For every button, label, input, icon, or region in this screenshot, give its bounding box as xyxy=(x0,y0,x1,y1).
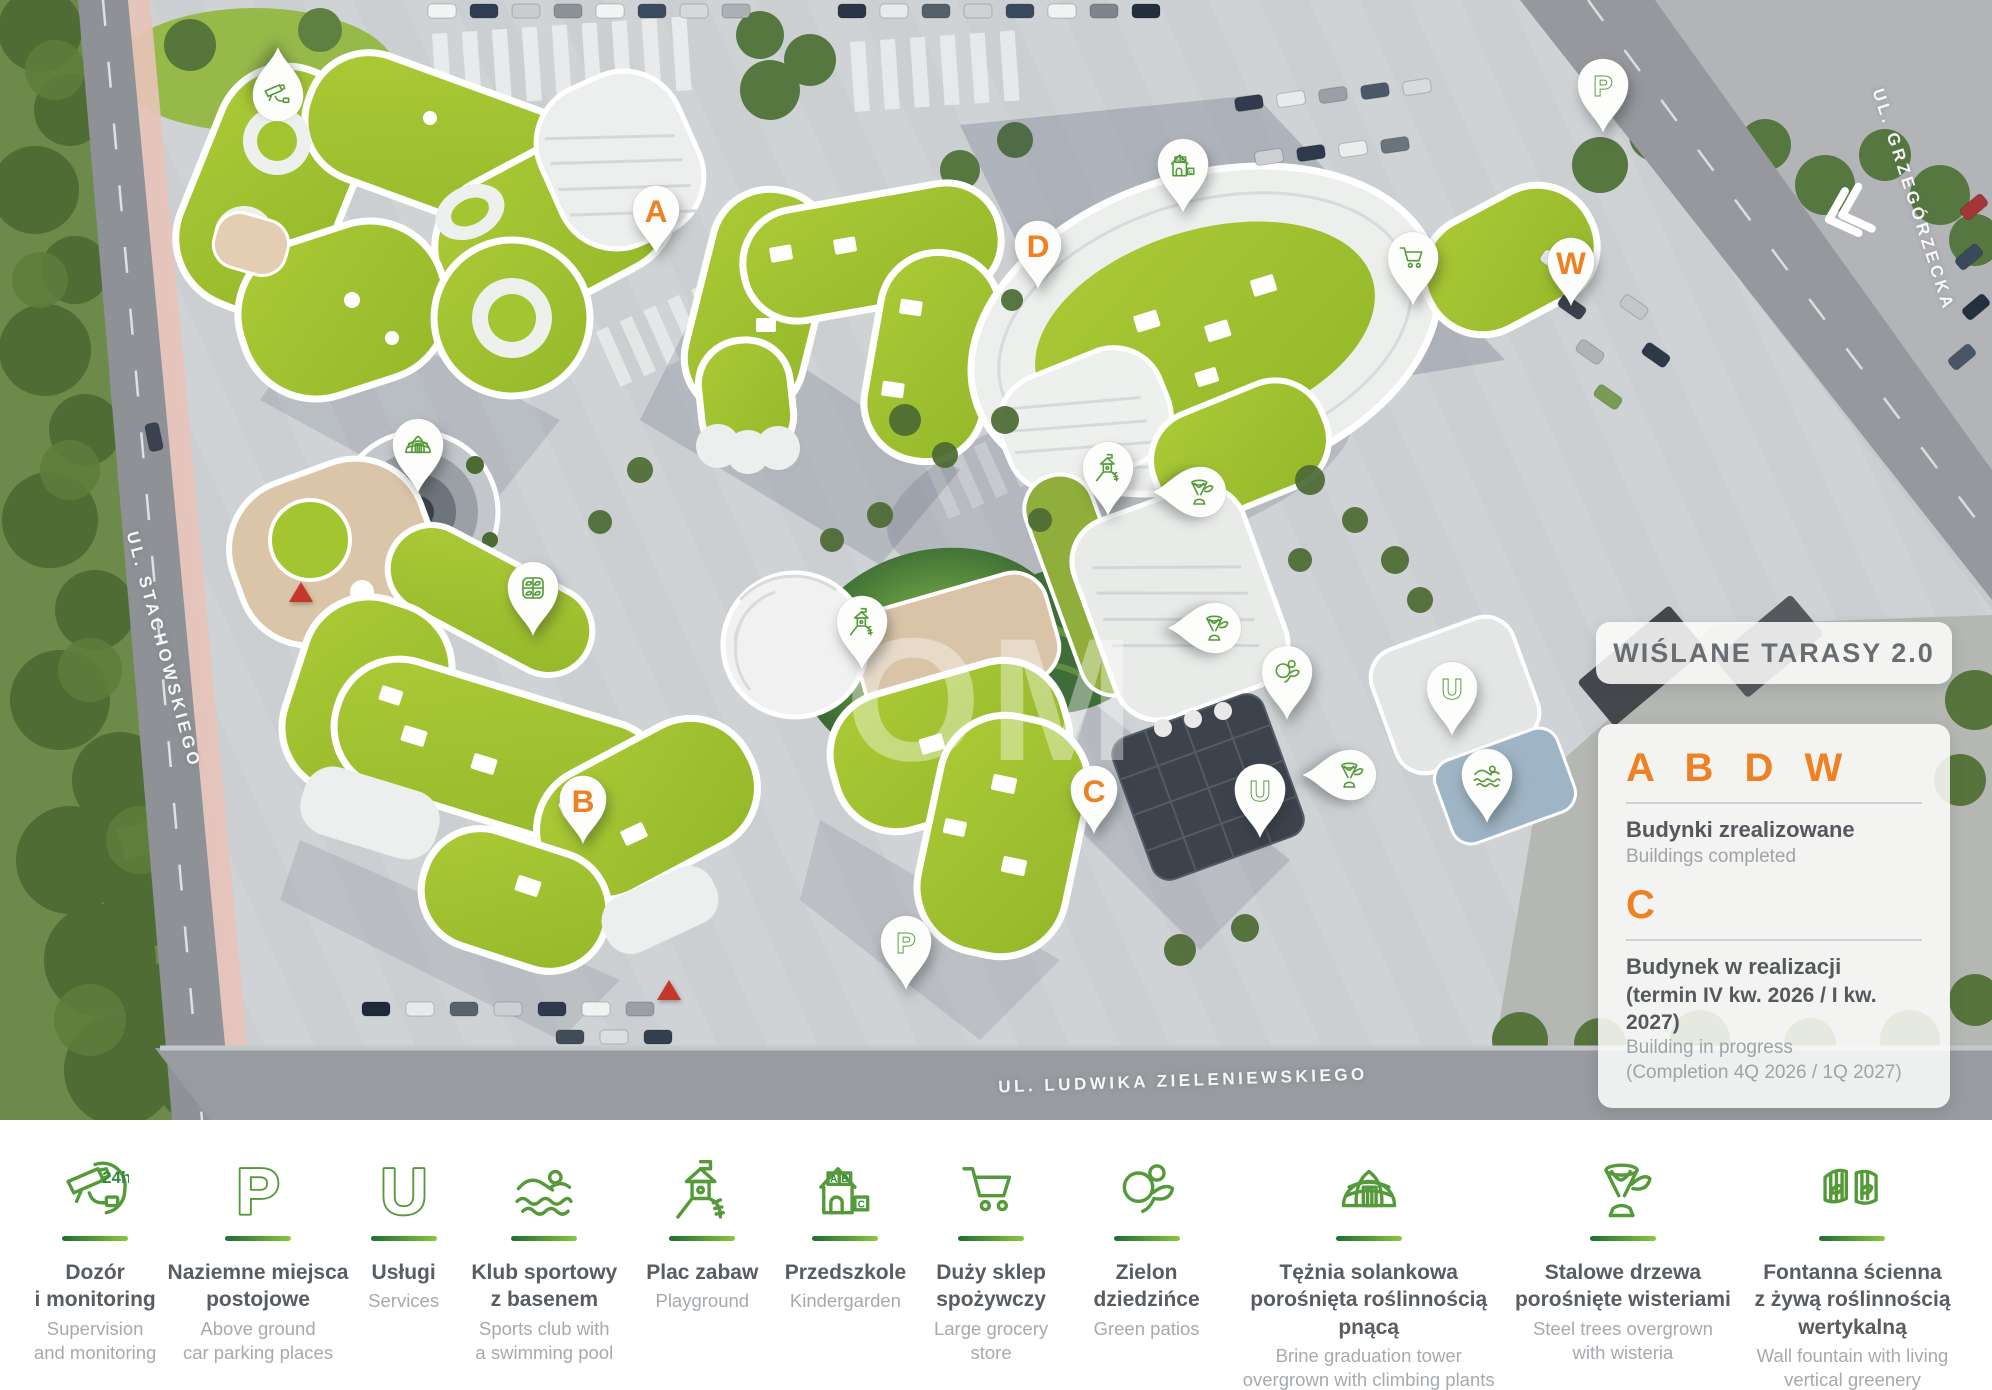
amenity-pin-brine-tower xyxy=(390,417,446,473)
legend-underline xyxy=(669,1236,735,1241)
brine-tower-icon xyxy=(402,429,434,461)
legend-label-pl: Dozór i monitoring xyxy=(34,1259,155,1314)
amenity-pin-swimming xyxy=(1459,747,1515,803)
amenities-legend-bar: 24hDozór i monitoringSupervision and mon… xyxy=(0,1120,1992,1390)
legend-underline xyxy=(1336,1236,1402,1241)
completed-label-pl: Budynki zrealizowane xyxy=(1626,816,1922,845)
amenity-pin-steel-tree xyxy=(1187,600,1243,656)
legend-label-en: Wall fountain with living vertical green… xyxy=(1757,1344,1949,1390)
building-letter: B xyxy=(564,781,602,819)
swimming-icon xyxy=(510,1138,578,1224)
parking-letter-icon: P xyxy=(1585,67,1621,103)
legend-item-steel-tree: Stalowe drzewa porośnięte wisteriamiStee… xyxy=(1507,1138,1739,1365)
playground-icon xyxy=(668,1138,736,1224)
divider xyxy=(1626,939,1922,941)
cctv-camera-icon: 24h xyxy=(61,1138,129,1224)
legend-label-en: Green patios xyxy=(1094,1317,1200,1341)
legend-underline xyxy=(371,1236,437,1241)
wall-fountain-icon xyxy=(1818,1138,1886,1224)
legend-label-pl: Usługi xyxy=(372,1259,436,1286)
services-letter-icon: U xyxy=(1434,670,1470,706)
amenity-pin-cctv-camera xyxy=(250,67,306,123)
legend-item-cctv-camera: 24hDozór i monitoringSupervision and mon… xyxy=(26,1138,164,1365)
amenity-pin-steel-tree xyxy=(1322,747,1378,803)
legend-underline xyxy=(1114,1236,1180,1241)
legend-label-en: Above ground car parking places xyxy=(183,1317,333,1365)
completed-label-en: Buildings completed xyxy=(1626,845,1922,870)
legend-label-pl: Klub sportowy z basenem xyxy=(471,1259,617,1314)
completed-building-letters: A B D W xyxy=(1626,748,1922,788)
svg-text:P: P xyxy=(236,1156,279,1224)
legend-item-playground: Plac zabawPlayground xyxy=(633,1138,771,1313)
legend-item-wall-fountain: Fontanna ścienna z żywą roślinnością wer… xyxy=(1739,1138,1966,1390)
svg-text:P: P xyxy=(1594,71,1613,102)
amenity-pin-playground xyxy=(834,594,890,650)
legend-label-en: Services xyxy=(368,1289,439,1313)
cctv-camera-icon xyxy=(262,79,294,111)
amenity-pin-services: U xyxy=(1424,660,1480,716)
steel-tree-icon xyxy=(1334,759,1366,791)
in-progress-term-en: (Completion 4Q 2026 / 1Q 2027) xyxy=(1626,1061,1922,1086)
svg-text:24h: 24h xyxy=(102,1168,129,1187)
building-pin-D: D xyxy=(1012,219,1064,271)
project-title-panel: WIŚLANE TARASY 2.0 xyxy=(1596,622,1952,684)
legend-underline xyxy=(1590,1236,1656,1241)
steel-tree-icon xyxy=(1589,1138,1657,1224)
legend-label-pl: Naziemne miejsca postojowe xyxy=(168,1259,349,1314)
legend-underline xyxy=(812,1236,878,1241)
kindergarten-icon: A B C xyxy=(811,1138,879,1224)
svg-text:A: A xyxy=(831,1174,838,1185)
green-patios-icon xyxy=(1271,656,1303,688)
services-letter-icon: U xyxy=(1242,772,1278,808)
legend-item-brine-tower: Tężnia solankowa porośnięta roślinnością… xyxy=(1230,1138,1506,1390)
parking-icon: P xyxy=(224,1138,292,1224)
legend-underline xyxy=(958,1236,1024,1241)
playground-icon xyxy=(846,606,878,638)
building-letter: C xyxy=(1075,771,1113,809)
building-pin-A: A xyxy=(630,184,682,236)
legend-underline xyxy=(511,1236,577,1241)
in-progress-label-en: Building in progress xyxy=(1626,1036,1922,1061)
svg-text:B: B xyxy=(842,1174,849,1185)
amenity-pin-grocery-cart xyxy=(1385,230,1441,286)
swimming-icon xyxy=(1471,759,1503,791)
grocery-cart-icon xyxy=(1397,242,1429,274)
legend-item-swimming: Klub sportowy z basenemSports club with … xyxy=(455,1138,633,1365)
kindergarten-icon: A B C xyxy=(1167,149,1199,181)
project-title: WIŚLANE TARASY 2.0 xyxy=(1613,638,1935,669)
legend-label-pl: Stalowe drzewa porośnięte wisteriami xyxy=(1515,1259,1731,1314)
legend-underline xyxy=(225,1236,291,1241)
in-progress-term-pl: (termin IV kw. 2026 / I kw. 2027) xyxy=(1626,982,1922,1037)
svg-text:U: U xyxy=(1442,674,1462,705)
amenity-pin-green-window xyxy=(505,560,561,616)
brine-tower-icon xyxy=(1335,1138,1403,1224)
svg-text:D: D xyxy=(1027,228,1050,264)
steel-tree-icon xyxy=(1199,612,1231,644)
legend-label-en: Steel trees overgrown with wisteria xyxy=(1533,1317,1713,1365)
legend-item-services-U: UUsługiServices xyxy=(352,1138,456,1313)
svg-text:C: C xyxy=(1083,773,1106,809)
legend-label-en: Large grocery store xyxy=(934,1317,1048,1365)
in-progress-building-letter: C xyxy=(1626,885,1922,925)
legend-label-pl: Zielon dziedzińce xyxy=(1063,1259,1231,1314)
legend-label-en: Kindergarden xyxy=(790,1289,901,1313)
amenity-pin-steel-tree xyxy=(1172,464,1228,520)
amenity-pin-playground xyxy=(1080,440,1136,496)
legend-label-en: Brine graduation tower overgrown with cl… xyxy=(1243,1344,1495,1390)
svg-text:U: U xyxy=(1250,776,1270,807)
svg-text:U: U xyxy=(380,1156,427,1224)
legend-label-pl: Duży sklep spożywczy xyxy=(936,1259,1046,1314)
amenity-pin-services: U xyxy=(1232,762,1288,818)
svg-text:A: A xyxy=(645,193,668,229)
amenity-pin-parking: P xyxy=(1575,57,1631,113)
in-progress-label-pl: Budynek w realizacji xyxy=(1626,953,1922,982)
legend-underline xyxy=(1819,1236,1885,1241)
services-icon: U xyxy=(370,1138,438,1224)
legend-item-green-patios: Zielon dziedzińceGreen patios xyxy=(1063,1138,1231,1341)
grocery-cart-icon xyxy=(957,1138,1025,1224)
building-pin-W: W xyxy=(1545,236,1597,288)
amenity-pin-parking: P xyxy=(878,914,934,970)
legend-item-parking-P: PNaziemne miejsca postojoweAbove ground … xyxy=(164,1138,352,1365)
parking-letter-icon: P xyxy=(888,924,924,960)
building-letter: W xyxy=(1552,243,1590,281)
red-triangle-marker xyxy=(289,582,313,602)
legend-label-pl: Przedszkole xyxy=(785,1259,906,1286)
legend-underline xyxy=(62,1236,128,1241)
divider xyxy=(1626,802,1922,804)
svg-text:B: B xyxy=(572,783,595,819)
legend-label-pl: Fontanna ścienna z żywą roślinnością wer… xyxy=(1754,1259,1950,1341)
building-letter: A xyxy=(637,191,675,229)
steel-tree-icon xyxy=(1184,476,1216,508)
amenity-pin-green-patios xyxy=(1259,644,1315,700)
svg-text:P: P xyxy=(897,928,916,959)
green-window-icon xyxy=(517,572,549,604)
svg-text:C: C xyxy=(858,1200,865,1211)
building-status-panel: A B D W Budynki zrealizowane Buildings c… xyxy=(1598,724,1950,1108)
legend-item-kindergarten: A B CPrzedszkoleKindergarden xyxy=(771,1138,919,1313)
svg-text:W: W xyxy=(1556,245,1586,281)
legend-item-grocery-cart: Duży sklep spożywczyLarge grocery store xyxy=(919,1138,1062,1365)
playground-icon xyxy=(1092,452,1124,484)
masterplan-map: OM UL. STACHOWSKIEGOUL. GRZEGÓRZECKAUL. … xyxy=(0,0,1992,1120)
legend-label-en: Sports club with a swimming pool xyxy=(475,1317,613,1365)
legend-label-en: Playground xyxy=(655,1289,749,1313)
amenity-pin-kindergarten: A B C xyxy=(1155,137,1211,193)
screenshot-stage: OM UL. STACHOWSKIEGOUL. GRZEGÓRZECKAUL. … xyxy=(0,0,1992,1390)
building-pin-C: C xyxy=(1068,764,1120,816)
building-pin-B: B xyxy=(557,774,609,826)
legend-label-pl: Tężnia solankowa porośnięta roślinnością… xyxy=(1250,1259,1487,1341)
legend-label-en: Supervision and monitoring xyxy=(34,1317,156,1365)
red-triangle-marker xyxy=(657,980,681,1000)
building-letter: D xyxy=(1019,226,1057,264)
legend-label-pl: Plac zabaw xyxy=(646,1259,758,1286)
green-patios-icon xyxy=(1113,1138,1181,1224)
